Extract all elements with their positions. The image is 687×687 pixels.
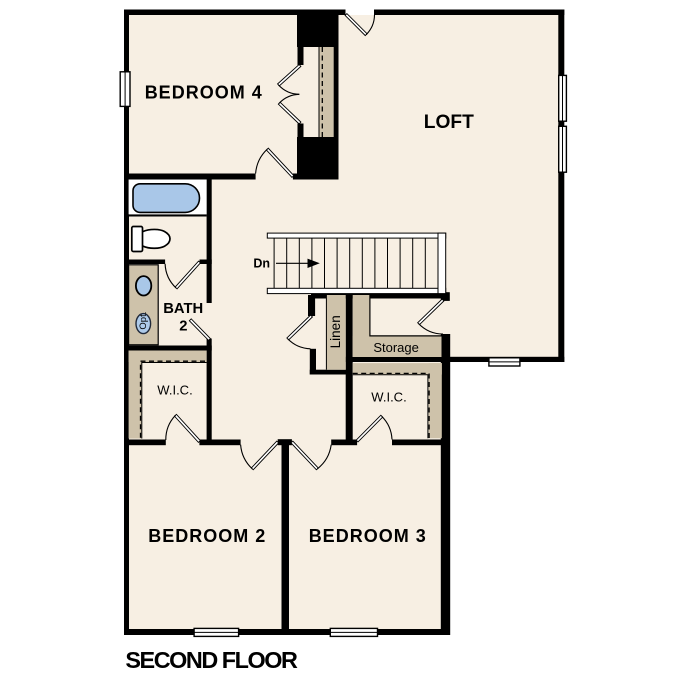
svg-text:Storage: Storage	[373, 340, 419, 355]
svg-text:BATH: BATH	[163, 301, 203, 317]
svg-text:W.I.C.: W.I.C.	[371, 390, 406, 405]
svg-text:BEDROOM 3: BEDROOM 3	[309, 526, 427, 546]
svg-text:BEDROOM 4: BEDROOM 4	[145, 82, 263, 102]
svg-text:2: 2	[179, 319, 187, 335]
svg-text:Opt.: Opt.	[138, 312, 149, 330]
svg-text:Linen: Linen	[328, 315, 343, 348]
svg-text:SECOND FLOOR: SECOND FLOOR	[125, 647, 298, 673]
svg-text:Dn: Dn	[253, 257, 270, 271]
svg-text:BEDROOM 2: BEDROOM 2	[148, 526, 266, 546]
svg-text:W.I.C.: W.I.C.	[157, 382, 192, 397]
svg-text:LOFT: LOFT	[424, 112, 474, 133]
